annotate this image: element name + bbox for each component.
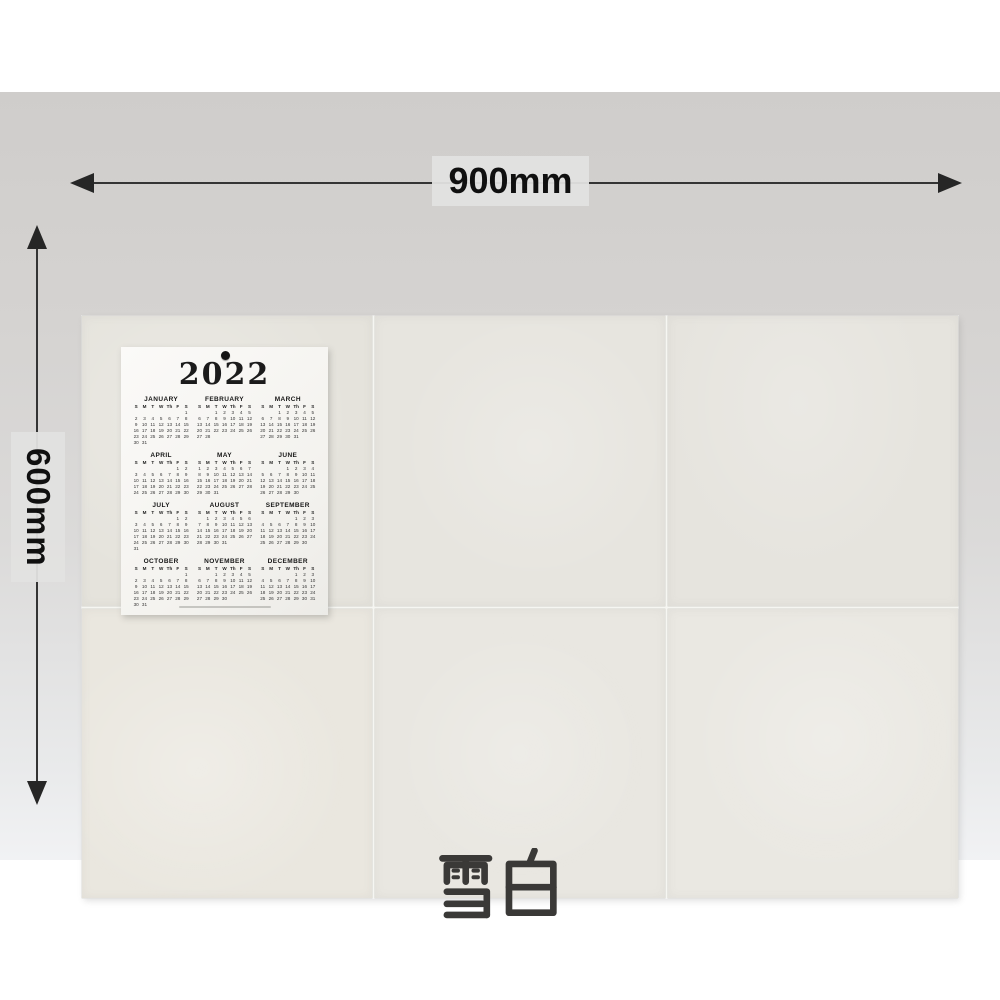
day-cell: 25 <box>229 534 237 540</box>
day-cell: 26 <box>157 434 165 440</box>
day-cell: 29 <box>182 596 190 602</box>
day-cell: 25 <box>259 540 267 546</box>
day-cell: 27 <box>195 596 203 602</box>
day-cell: 25 <box>309 484 317 490</box>
month-name: JULY <box>132 502 190 510</box>
month-grid: SMTWThFS12345678910111213141516171819202… <box>195 460 253 496</box>
day-cell: 27 <box>165 434 173 440</box>
calendar-month: MARCHSMTWThFS123456789101112131415161718… <box>259 396 317 446</box>
felt-tile <box>375 316 665 606</box>
month-name: JANUARY <box>132 396 190 404</box>
calendar-month: DECEMBERSMTWThFS123456789101112131415161… <box>259 558 317 608</box>
calendar-month: JULYSMTWThFS1234567891011121314151617181… <box>132 502 190 552</box>
day-cell: 26 <box>259 490 267 496</box>
day-cell: 28 <box>245 484 253 490</box>
product-name-glyphs <box>438 848 560 922</box>
month-name: OCTOBER <box>132 558 190 566</box>
day-cell: 28 <box>204 596 212 602</box>
day-cell: 26 <box>157 596 165 602</box>
day-cell: 27 <box>245 534 253 540</box>
month-grid: SMTWThFS12345678910111213141516171819202… <box>132 404 190 446</box>
day-cell: 25 <box>140 490 148 496</box>
day-cell: 27 <box>157 540 165 546</box>
day-cell: 31 <box>309 596 317 602</box>
day-cell: 31 <box>220 540 228 546</box>
day-cell: 30 <box>300 596 308 602</box>
day-cell: 27 <box>165 596 173 602</box>
day-cell: 30 <box>182 490 190 496</box>
day-cell: 24 <box>300 484 308 490</box>
day-cell: 31 <box>140 440 148 446</box>
day-cell: 25 <box>237 590 245 596</box>
calendar-month: JUNESMTWThFS1234567891011121314151617181… <box>259 452 317 496</box>
push-pin-icon <box>221 351 230 360</box>
month-grid: SMTWThFS12345678910111213141516171819202… <box>195 404 253 440</box>
arrow-right-icon <box>938 173 962 193</box>
day-cell: 29 <box>204 540 212 546</box>
calendar-month: JANUARYSMTWThFS1234567891011121314151617… <box>132 396 190 446</box>
calendar-credit-line <box>179 606 271 609</box>
day-cell: 30 <box>132 440 140 446</box>
calendar-month: MAYSMTWThFS12345678910111213141516171819… <box>195 452 253 496</box>
day-cell: 26 <box>267 540 275 546</box>
calendar-months: JANUARYSMTWThFS1234567891011121314151617… <box>121 391 328 608</box>
month-name: SEPTEMBER <box>259 502 317 510</box>
product-photo-backdrop: 2022 JANUARYSMTWThFS12345678910111213141… <box>0 92 1000 860</box>
width-dimension-label: 900mm <box>432 156 589 206</box>
day-cell: 29 <box>182 434 190 440</box>
month-grid: SMTWThFS12345678910111213141516171819202… <box>195 510 253 546</box>
month-grid: SMTWThFS12345678910111213141516171819202… <box>259 510 317 546</box>
month-name: NOVEMBER <box>195 558 253 566</box>
day-cell: 29 <box>292 596 300 602</box>
day-cell: 28 <box>275 490 283 496</box>
product-name: 雪白 <box>438 848 560 922</box>
month-grid: SMTWThFS12345678910111213141516171819202… <box>132 566 190 608</box>
day-cell: 25 <box>140 540 148 546</box>
calendar-month: NOVEMBERSMTWThFS123456789101112131415161… <box>195 558 253 608</box>
month-name: MAY <box>195 452 253 460</box>
day-cell: 26 <box>309 428 317 434</box>
day-cell: 29 <box>174 540 182 546</box>
calendar-month: OCTOBERSMTWThFS1234567891011121314151617… <box>132 558 190 608</box>
height-dimension-label: 600mm <box>11 432 65 582</box>
day-cell: 24 <box>229 590 237 596</box>
day-cell: 25 <box>220 484 228 490</box>
height-value: 600mm <box>19 448 57 567</box>
month-name: DECEMBER <box>259 558 317 566</box>
day-cell: 28 <box>204 434 212 440</box>
day-cell: 31 <box>212 490 220 496</box>
day-cell: 23 <box>220 428 228 434</box>
day-cell: 28 <box>165 540 173 546</box>
calendar-month: AUGUSTSMTWThFS12345678910111213141516171… <box>195 502 253 552</box>
month-name: APRIL <box>132 452 190 460</box>
month-grid: SMTWThFS12345678910111213141516171819202… <box>259 404 317 440</box>
day-cell: 30 <box>182 540 190 546</box>
day-cell: 26 <box>267 596 275 602</box>
day-cell: 31 <box>132 546 140 552</box>
day-cell: 31 <box>140 602 148 608</box>
day-cell: 28 <box>267 434 275 440</box>
calendar-month: FEBRUARYSMTWThFS123456789101112131415161… <box>195 396 253 446</box>
day-cell: 29 <box>212 596 220 602</box>
day-cell: 30 <box>220 596 228 602</box>
day-cell: 27 <box>157 490 165 496</box>
calendar-month: SEPTEMBERSMTWThFS12345678910111213141516… <box>259 502 317 552</box>
day-cell: 28 <box>284 596 292 602</box>
day-cell: 26 <box>237 534 245 540</box>
day-cell: 26 <box>229 484 237 490</box>
day-cell: 26 <box>245 590 253 596</box>
felt-tile <box>82 609 372 899</box>
day-cell: 28 <box>174 434 182 440</box>
day-cell: 31 <box>292 434 300 440</box>
calendar-sheet: 2022 JANUARYSMTWThFS12345678910111213141… <box>121 347 328 615</box>
day-cell: 25 <box>149 434 157 440</box>
day-cell: 30 <box>300 540 308 546</box>
day-cell: 30 <box>292 490 300 496</box>
day-cell: 27 <box>237 484 245 490</box>
day-cell: 28 <box>195 540 203 546</box>
day-cell: 28 <box>174 596 182 602</box>
day-cell: 30 <box>204 490 212 496</box>
day-cell: 30 <box>212 540 220 546</box>
day-cell: 28 <box>165 490 173 496</box>
day-cell: 26 <box>149 490 157 496</box>
glyph-bai <box>509 851 553 913</box>
month-name: AUGUST <box>195 502 253 510</box>
day-cell: 25 <box>259 596 267 602</box>
day-cell: 30 <box>132 602 140 608</box>
month-grid: SMTWThFS12345678910111213141516171819202… <box>132 510 190 552</box>
month-grid: SMTWThFS12345678910111213141516171819202… <box>195 566 253 602</box>
day-cell: 26 <box>149 540 157 546</box>
month-name: FEBRUARY <box>195 396 253 404</box>
month-grid: SMTWThFS12345678910111213141516171819202… <box>132 460 190 496</box>
day-cell: 27 <box>275 596 283 602</box>
calendar-year: 2022 <box>121 359 328 391</box>
day-cell: 27 <box>267 490 275 496</box>
month-grid: SMTWThFS12345678910111213141516171819202… <box>259 460 317 496</box>
month-grid: SMTWThFS12345678910111213141516171819202… <box>259 566 317 602</box>
width-value: 900mm <box>448 160 572 202</box>
arrow-down-icon <box>27 781 47 805</box>
day-cell: 29 <box>292 540 300 546</box>
day-cell: 27 <box>195 434 203 440</box>
arrow-up-icon <box>27 225 47 249</box>
day-cell: 24 <box>309 534 317 540</box>
felt-tile <box>668 316 958 606</box>
arrow-left-icon <box>70 173 94 193</box>
felt-tile <box>668 609 958 899</box>
calendar-month: APRILSMTWThFS123456789101112131415161718… <box>132 452 190 496</box>
day-cell: 25 <box>300 428 308 434</box>
day-cell: 26 <box>245 428 253 434</box>
day-cell: 29 <box>284 490 292 496</box>
month-name: MARCH <box>259 396 317 404</box>
day-cell: 28 <box>284 540 292 546</box>
day-cell: 25 <box>237 428 245 434</box>
day-cell: 30 <box>284 434 292 440</box>
glyph-xue <box>442 858 489 915</box>
day-cell: 24 <box>132 490 140 496</box>
day-cell: 24 <box>229 428 237 434</box>
day-cell: 29 <box>174 490 182 496</box>
month-name: JUNE <box>259 452 317 460</box>
day-cell: 25 <box>149 596 157 602</box>
day-cell: 22 <box>212 428 220 434</box>
day-cell: 29 <box>195 490 203 496</box>
day-cell: 27 <box>259 434 267 440</box>
day-cell: 29 <box>275 434 283 440</box>
day-cell: 27 <box>275 540 283 546</box>
